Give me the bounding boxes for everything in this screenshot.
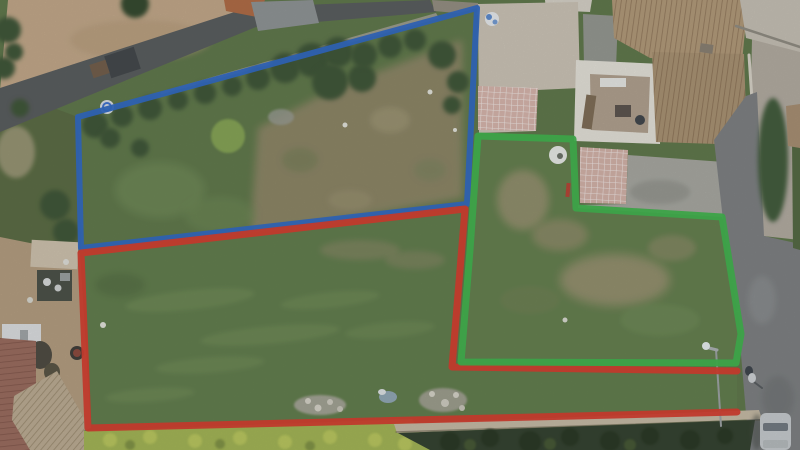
aerial-land-parcel-photo bbox=[0, 0, 800, 450]
photo-grain bbox=[0, 0, 800, 450]
scene-canvas bbox=[0, 0, 800, 450]
